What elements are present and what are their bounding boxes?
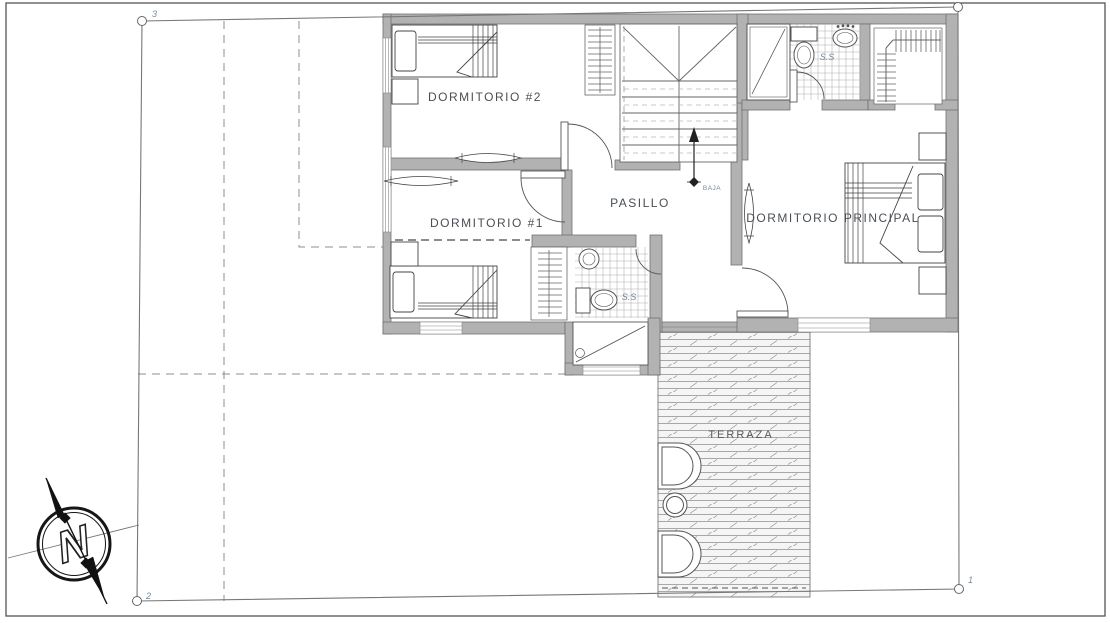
bed-bedroom1 bbox=[390, 240, 530, 318]
window bbox=[420, 322, 462, 334]
room-label-terrace: TERRAZA bbox=[708, 429, 773, 441]
bathroom-top-label: S.S bbox=[820, 52, 835, 62]
bathroom-top bbox=[747, 24, 861, 100]
corner-marker-top-right bbox=[954, 3, 963, 12]
window bbox=[383, 38, 391, 93]
closet-bedroom2 bbox=[585, 25, 615, 95]
bathroom-mid-label: S.S bbox=[622, 292, 637, 302]
ac-unit-bedroom1 bbox=[384, 177, 458, 186]
drawing-sheet: 3 2 1 N DORMITORIO #2 DORMITORIO #1 PASI… bbox=[0, 0, 1110, 623]
sink-symbol bbox=[833, 25, 857, 47]
nightstand bbox=[392, 79, 418, 104]
setback-lines bbox=[138, 21, 565, 601]
stairs-direction-label: BAJA bbox=[703, 185, 721, 192]
shower-symbol bbox=[747, 24, 790, 100]
nightstand bbox=[919, 133, 946, 160]
closet-bedroom1 bbox=[531, 247, 567, 320]
nightstand bbox=[391, 242, 418, 266]
toilet-symbol bbox=[576, 288, 617, 313]
room-label-hallway: PASILLO bbox=[610, 196, 670, 210]
room-label-master: DORMITORIO PRINCIPAL bbox=[746, 211, 920, 225]
corner-marker-2 bbox=[133, 597, 142, 606]
door-bedroom1 bbox=[521, 171, 565, 222]
room-label-bedroom1: DORMITORIO #1 bbox=[430, 216, 544, 230]
closet-master-walkin bbox=[874, 28, 942, 104]
window bbox=[383, 147, 391, 232]
corner-label-3: 3 bbox=[152, 9, 157, 19]
terrace bbox=[658, 322, 810, 597]
bathroom-mid bbox=[573, 247, 648, 365]
door-master bbox=[737, 268, 788, 317]
north-compass: N bbox=[38, 478, 110, 604]
corner-label-1: 1 bbox=[968, 575, 973, 585]
corner-marker-1 bbox=[955, 585, 964, 594]
compass-needle bbox=[46, 478, 107, 604]
sink-symbol bbox=[579, 249, 599, 269]
shower-symbol bbox=[573, 322, 648, 365]
door-bedroom2 bbox=[561, 122, 612, 170]
nightstand bbox=[919, 267, 946, 294]
corner-marker-3 bbox=[138, 17, 147, 26]
window bbox=[798, 318, 870, 332]
floor-plan-canvas: 3 2 1 N DORMITORIO #2 DORMITORIO #1 PASI… bbox=[0, 0, 1110, 623]
door-bathroom-top bbox=[790, 70, 824, 102]
corner-label-2: 2 bbox=[145, 591, 151, 601]
room-label-bedroom2: DORMITORIO #2 bbox=[428, 90, 542, 104]
toilet-symbol bbox=[791, 27, 817, 68]
